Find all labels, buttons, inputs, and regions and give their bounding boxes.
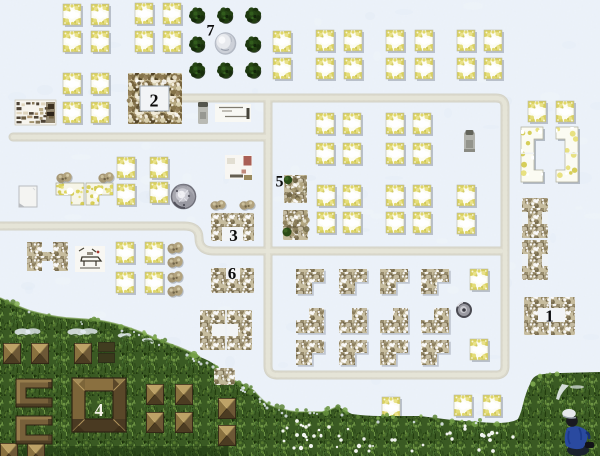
- svg-text:2: 2: [150, 91, 159, 111]
- svg-text:4: 4: [95, 400, 104, 420]
- svg-text:3: 3: [229, 226, 238, 245]
- svg-text:5: 5: [276, 174, 284, 191]
- svg-text:6: 6: [228, 264, 237, 283]
- svg-text:7: 7: [207, 23, 215, 40]
- svg-text:1: 1: [545, 307, 554, 326]
